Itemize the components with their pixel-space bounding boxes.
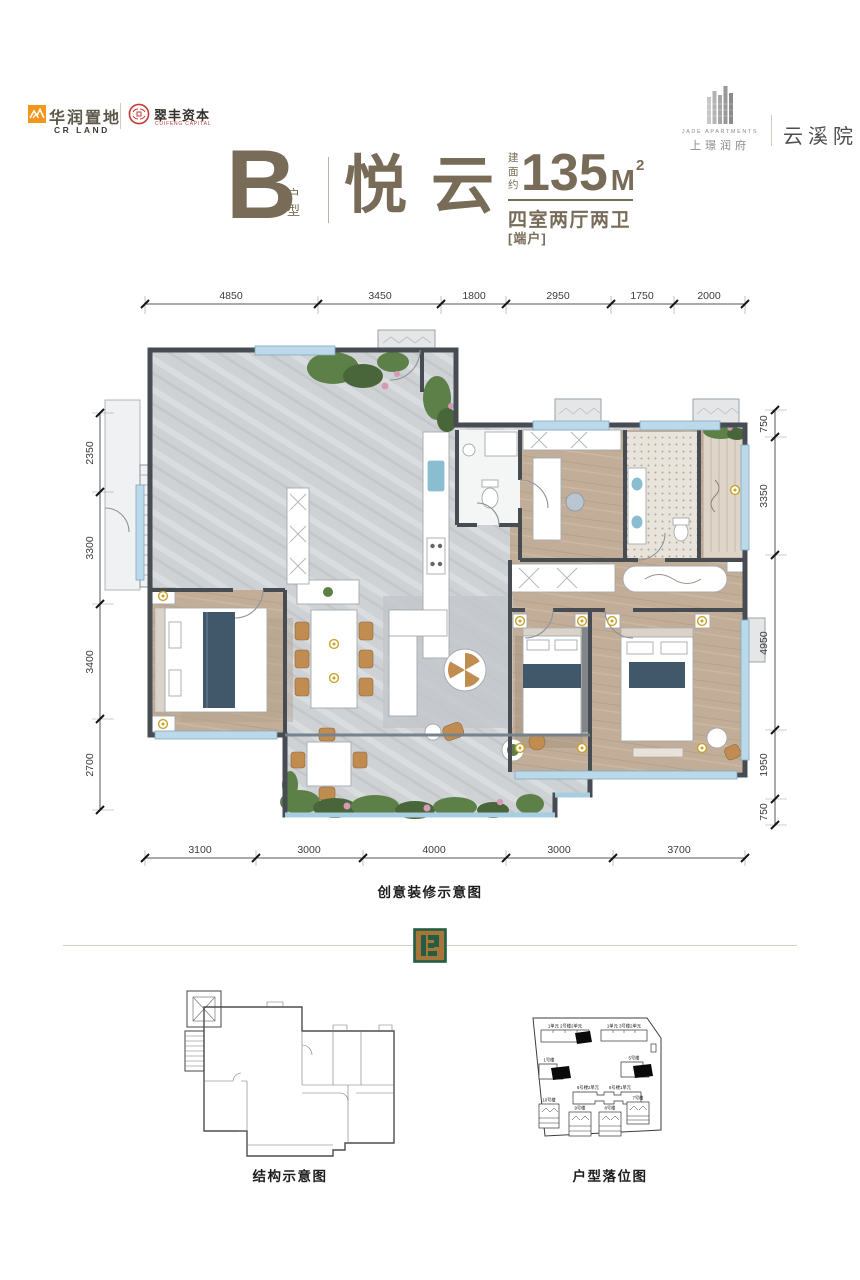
dim-label: 4950 — [758, 631, 770, 655]
position-tag: [端户] — [508, 228, 547, 247]
dim-label: 1800 — [462, 290, 486, 302]
highlight-unit-b — [633, 1064, 653, 1078]
area-figure: 135M2 — [521, 153, 644, 195]
flyer-page: 华润置地 CR LAND 翠丰资本 CUIFENG CAPITAL JADE A… — [0, 0, 860, 1280]
header-divider-left — [120, 103, 121, 129]
walkin-closet — [703, 432, 743, 558]
floorplan-caption: 创意装修示意图 — [280, 881, 580, 901]
highlight-unit-b — [575, 1031, 592, 1044]
dim-label: 3700 — [667, 844, 691, 856]
siteplan-caption: 户型落位图 — [510, 1165, 710, 1185]
fridge — [485, 432, 517, 456]
dim-label: 2950 — [546, 290, 570, 302]
dim-label: 750 — [758, 803, 770, 821]
header-divider-right — [771, 115, 772, 146]
dresser — [623, 566, 727, 592]
dimension-bottom: 3100 3000 4000 3000 3700 — [141, 844, 749, 866]
dim-label: 3450 — [368, 290, 392, 302]
floorplan-rendered: 4850 3450 1800 2950 1750 2000 3100 3000 … — [85, 280, 810, 900]
entry-closet — [287, 488, 309, 584]
highlight-unit-b — [551, 1066, 571, 1080]
dim-label: 750 — [758, 415, 770, 433]
dim-label: 1950 — [758, 753, 770, 777]
crland-logo-icon — [28, 105, 46, 123]
unit-suffix: 户型 — [287, 187, 301, 220]
bedroom-2 — [513, 614, 588, 736]
dim-label: 4850 — [219, 290, 243, 302]
area-label: 建面约 — [508, 152, 520, 193]
dim-label: 3100 — [188, 844, 212, 856]
dim-label: 3350 — [758, 484, 770, 508]
cuifeng-seal-icon — [128, 103, 150, 125]
dimension-top: 4850 3450 1800 2950 1750 2000 — [141, 290, 749, 314]
dim-label: 3300 — [85, 536, 96, 560]
dim-label: 2000 — [697, 290, 721, 302]
siteplan-label: 1单元 3号楼2单元 — [607, 1023, 642, 1030]
layout-name: 悦云 — [344, 155, 518, 218]
dim-label: 3000 — [297, 844, 321, 856]
cuifeng-name-en: CUIFENG CAPITAL — [155, 121, 211, 127]
siteplan-label: 1单元 2号楼2单元 — [548, 1023, 583, 1030]
dim-label: 3400 — [85, 650, 96, 674]
jade-building-icon — [707, 86, 733, 124]
terrace-table — [307, 742, 351, 786]
dim-label: 1750 — [630, 290, 654, 302]
area-rule — [508, 199, 633, 201]
area-unit: M — [611, 170, 635, 193]
dim-label: 3000 — [547, 844, 571, 856]
area-exponent: 2 — [636, 158, 644, 173]
crland-name-en: CR LAND — [54, 125, 110, 135]
dim-label: 2350 — [85, 441, 96, 465]
dim-label: 4000 — [422, 844, 446, 856]
siteplan-label: 6号楼1单元 — [609, 1084, 632, 1091]
structure-diagram — [183, 985, 413, 1157]
siteplan-label: 7号楼 — [633, 1095, 645, 1102]
site-plan: 1单元 2号楼2单元 1单元 3号楼2单元 1号楼 5号楼 6号楼2单元 6号楼… — [525, 1012, 705, 1157]
project-name: 云溪院 — [783, 120, 858, 149]
tv-wall — [582, 616, 588, 732]
jade-name-en: JADE APARTMENTS — [668, 129, 772, 135]
structure-caption: 结构示意图 — [190, 1165, 390, 1185]
area-value: 135 — [521, 153, 608, 195]
dim-label: 2700 — [85, 753, 96, 777]
dining-table — [311, 610, 357, 708]
siteplan-label: 8号楼 — [605, 1105, 617, 1112]
siteplan-label: 9号楼 — [575, 1105, 587, 1112]
siteplan-label: 1号楼 — [544, 1057, 556, 1064]
siteplan-label: 6号楼2单元 — [577, 1084, 600, 1091]
title-divider — [328, 157, 329, 223]
crland-monogram-icon — [413, 928, 447, 963]
siteplan-label: 5号楼 — [629, 1055, 641, 1062]
siteplan-label: 10号楼 — [542, 1097, 556, 1104]
jade-name: 上璟润府 — [668, 137, 772, 153]
bedroom-left — [151, 588, 267, 732]
